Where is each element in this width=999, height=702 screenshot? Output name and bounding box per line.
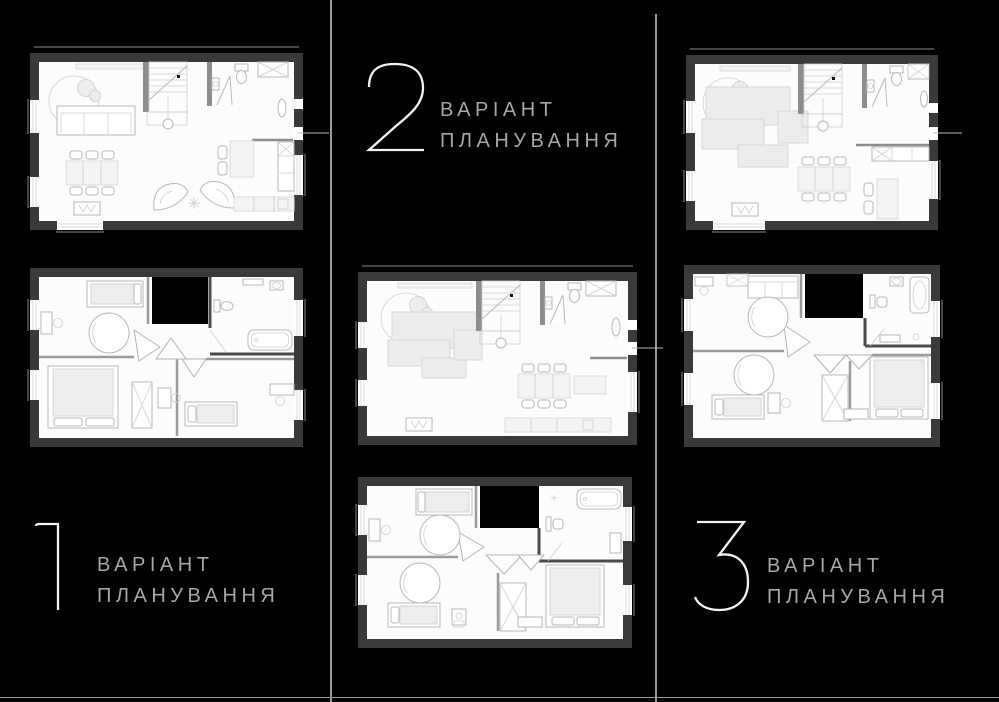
radiator — [921, 91, 928, 107]
variant-2-number — [366, 62, 428, 152]
bottom-border-line — [0, 697, 999, 698]
fireplace — [74, 202, 100, 215]
floorplan-variant-3-upper-floor — [684, 265, 940, 447]
floorplan-variant-1-ground-floor — [30, 53, 303, 230]
variant-1-number — [33, 519, 63, 611]
variant-2-label-line2: ПЛАНУВАННЯ — [440, 126, 622, 157]
fireplace — [406, 418, 432, 431]
stairwell-void — [805, 274, 863, 318]
dining-table — [798, 157, 850, 201]
closet — [586, 281, 616, 296]
tv-console — [398, 283, 472, 288]
floorplan-variant-2-ground-floor — [358, 272, 637, 445]
column-divider-right — [655, 14, 657, 702]
radiator — [612, 318, 620, 336]
closet — [258, 62, 288, 77]
stairwell-void — [480, 486, 539, 528]
floorplan-variant-3-ground-floor — [686, 55, 938, 230]
bedroom-bottom-left — [48, 366, 118, 428]
section-marker — [177, 75, 180, 78]
variant-3-label-line1: ВАРІАНТ — [767, 551, 949, 582]
poster: ВАРІАНТ ПЛАНУВАННЯ ВАРІАНТ ПЛАНУВАННЯ — [0, 0, 999, 702]
tv-console — [76, 64, 148, 69]
variant-2-label-line1: ВАРІАНТ — [440, 95, 622, 126]
tv-console — [720, 66, 790, 71]
variant-2-label: ВАРІАНТ ПЛАНУВАННЯ — [440, 95, 622, 157]
closet — [908, 64, 929, 79]
variant-1-label-line1: ВАРІАНТ — [97, 550, 279, 581]
dining-table — [518, 364, 570, 408]
sofa — [57, 106, 135, 135]
column-divider-left — [330, 0, 332, 702]
fireplace — [732, 203, 758, 216]
variant-3-number — [692, 518, 752, 613]
wardrobe — [132, 382, 152, 428]
variant-1-label-line2: ПЛАНУВАННЯ — [97, 581, 279, 612]
floorplan-variant-1-upper-floor — [30, 268, 303, 447]
section-marker — [510, 294, 513, 297]
radiator — [278, 99, 286, 117]
floorplan-variant-2-upper-floor — [358, 477, 632, 648]
section-marker — [832, 77, 835, 80]
dining-table — [66, 151, 118, 195]
stairwell-void — [152, 277, 208, 324]
variant-3-label-line2: ПЛАНУВАННЯ — [767, 582, 949, 613]
variant-1-label: ВАРІАНТ ПЛАНУВАННЯ — [97, 550, 279, 612]
variant-3-label: ВАРІАНТ ПЛАНУВАННЯ — [767, 551, 949, 613]
